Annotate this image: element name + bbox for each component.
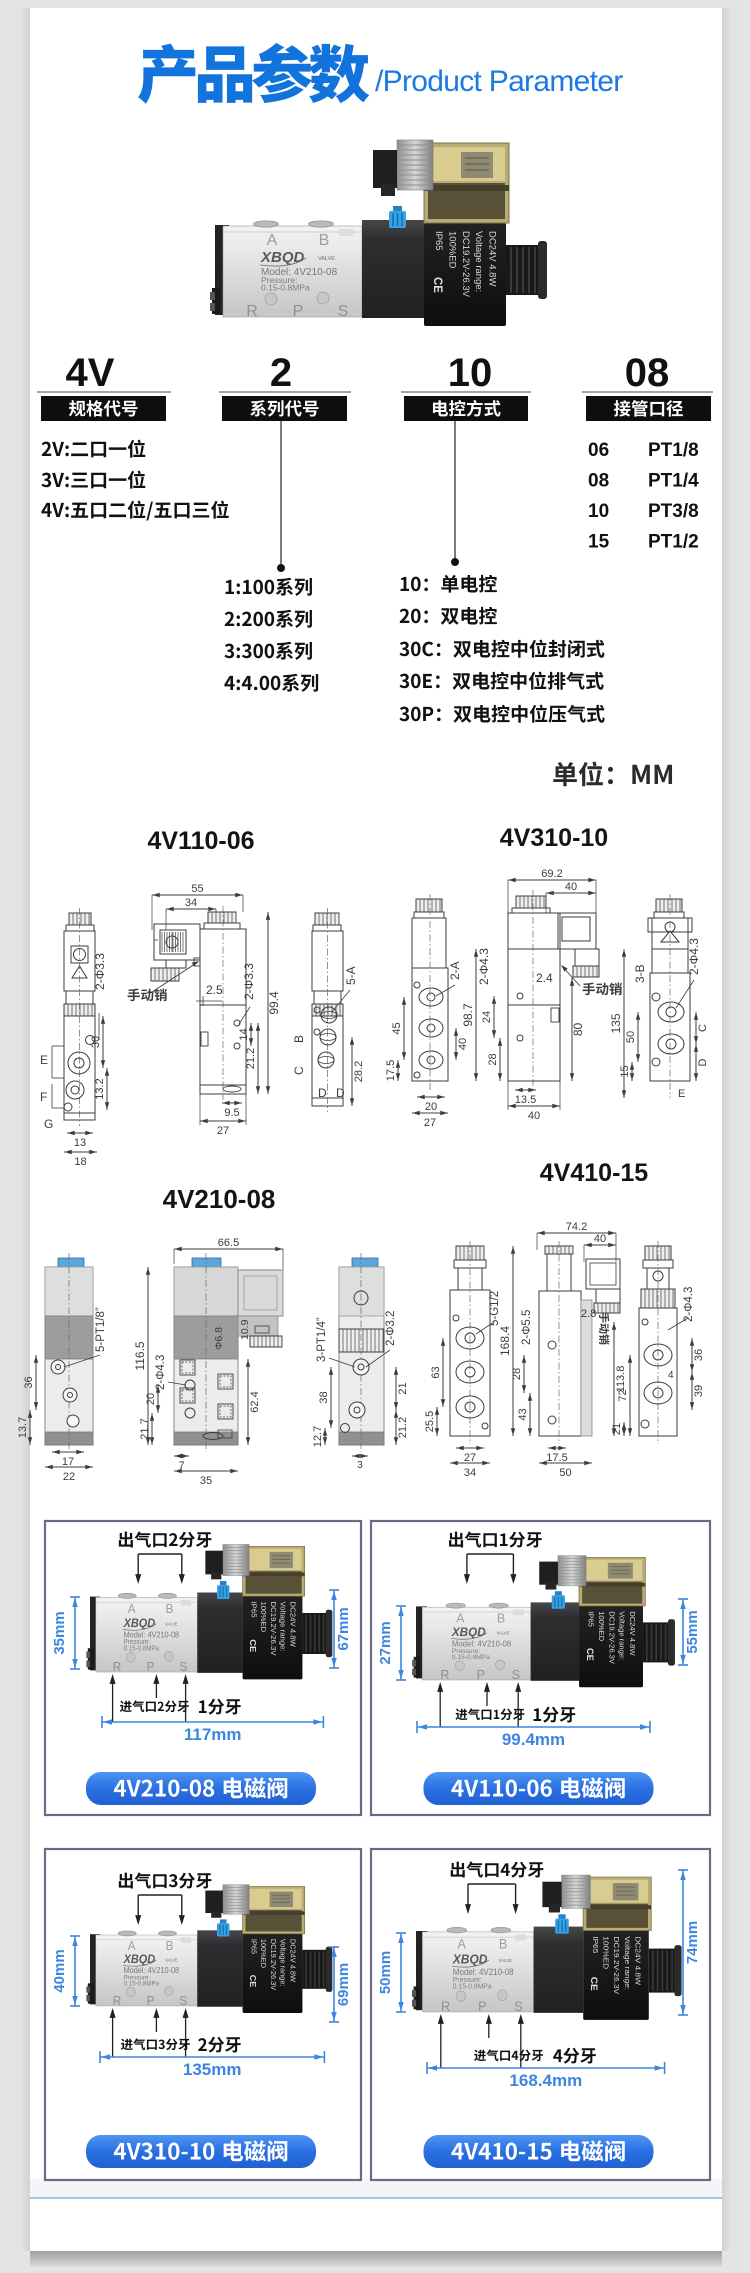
svg-text:06: 06 [588,440,609,461]
svg-text:27mm: 27mm [377,1621,394,1664]
svg-text:63: 63 [430,1366,442,1378]
svg-text:74mm: 74mm [684,1921,701,1964]
svg-text:13.7: 13.7 [17,1417,29,1438]
svg-text:135mm: 135mm [183,2060,242,2079]
svg-text:E: E [40,1053,48,1067]
svg-text:2-Φ5.5: 2-Φ5.5 [521,1310,533,1345]
svg-text:28: 28 [511,1368,523,1380]
svg-text:99.4: 99.4 [267,991,281,1015]
svg-text:35: 35 [200,1475,212,1487]
svg-text:14: 14 [238,1028,250,1040]
svg-text:40: 40 [594,1233,606,1245]
svg-text:2-Φ4.3: 2-Φ4.3 [477,948,491,985]
svg-text:50mm: 50mm [377,1951,394,1994]
svg-text:/Product Parameter: /Product Parameter [375,65,623,98]
svg-text:15: 15 [619,1065,631,1077]
svg-text:5-G1/2: 5-G1/2 [489,1291,501,1326]
svg-text:168.4mm: 168.4mm [509,2071,582,2090]
svg-text:3: 3 [357,1460,363,1471]
svg-text:4V: 4V [66,351,115,395]
svg-text:50: 50 [559,1467,571,1479]
svg-text:80: 80 [571,1023,585,1037]
svg-text:13.2: 13.2 [94,1078,106,1099]
svg-text:21.7: 21.7 [139,1418,151,1439]
svg-text:34: 34 [464,1467,476,1479]
svg-text:40: 40 [565,881,577,893]
svg-text:62.4: 62.4 [249,1391,261,1412]
svg-text:5-PT1/8”: 5-PT1/8” [95,1307,107,1352]
svg-text:4V110-06: 4V110-06 [147,827,254,855]
svg-text:21: 21 [397,1382,409,1394]
svg-text:74.2: 74.2 [566,1221,587,1233]
svg-text:PT1/4: PT1/4 [648,471,699,492]
svg-text:2-Φ4.3: 2-Φ4.3 [683,1287,695,1322]
svg-text:22: 22 [63,1471,75,1483]
svg-text:69.2: 69.2 [541,868,562,880]
svg-text:72: 72 [617,1389,629,1401]
svg-text:17.5: 17.5 [385,1060,397,1081]
svg-text:2-Φ3.3: 2-Φ3.3 [93,953,107,990]
svg-text:66.5: 66.5 [218,1237,239,1249]
svg-text:D: D [336,1086,345,1100]
svg-text:Φ6.8: Φ6.8 [213,1327,225,1350]
svg-text:28.2: 28.2 [353,1061,365,1082]
svg-text:25.5: 25.5 [424,1411,436,1432]
svg-text:15: 15 [588,532,610,553]
svg-text:9.5: 9.5 [224,1107,239,1119]
svg-text:B: B [292,1035,306,1043]
svg-text:08: 08 [625,351,670,395]
svg-text:27: 27 [464,1452,476,1464]
svg-text:2-Φ3.3: 2-Φ3.3 [242,963,256,1000]
svg-text:18: 18 [74,1156,86,1168]
svg-text:40: 40 [528,1110,540,1122]
svg-text:21.2: 21.2 [397,1417,409,1438]
svg-text:20: 20 [145,1393,157,1405]
svg-text:98.7: 98.7 [461,1003,475,1027]
svg-text:30: 30 [90,1036,102,1048]
svg-text:69mm: 69mm [335,1963,352,2006]
svg-text:168.4: 168.4 [498,1326,512,1356]
svg-text:38: 38 [318,1391,330,1403]
svg-text:27: 27 [424,1117,436,1129]
svg-text:13: 13 [74,1137,86,1149]
svg-text:13.5: 13.5 [515,1094,536,1106]
svg-text:17: 17 [62,1456,74,1468]
svg-text:PT1/8: PT1/8 [648,440,699,461]
svg-text:135: 135 [609,1013,623,1033]
svg-text:4V410-15: 4V410-15 [540,1159,649,1187]
svg-text:28: 28 [487,1053,499,1065]
svg-text:2.4: 2.4 [536,971,553,985]
svg-text:36: 36 [23,1376,35,1388]
svg-text:10.9: 10.9 [239,1319,251,1340]
svg-text:12.7: 12.7 [312,1426,324,1447]
svg-text:116.5: 116.5 [133,1341,147,1370]
svg-text:10: 10 [588,501,609,522]
svg-text:113.8: 113.8 [615,1366,627,1393]
svg-text:50: 50 [625,1031,637,1043]
svg-text:2-Φ4.3: 2-Φ4.3 [155,1355,167,1390]
svg-text:C: C [292,1066,306,1075]
svg-text:21.2: 21.2 [245,1048,257,1069]
svg-text:24: 24 [481,1011,493,1023]
svg-text:E: E [678,1088,685,1100]
svg-text:2.8: 2.8 [581,1308,596,1320]
svg-text:99.4mm: 99.4mm [502,1730,565,1749]
svg-text:4V210-08: 4V210-08 [163,1184,276,1214]
svg-text:10: 10 [448,351,493,395]
svg-text:27: 27 [217,1125,229,1137]
svg-text:117mm: 117mm [184,1725,242,1744]
svg-text:40mm: 40mm [51,1949,68,1992]
svg-text:C: C [697,1024,709,1032]
svg-text:17.5: 17.5 [546,1452,567,1464]
svg-text:2-Φ3.2: 2-Φ3.2 [385,1311,397,1346]
svg-text:08: 08 [588,471,609,492]
svg-text:40: 40 [457,1038,469,1050]
svg-text:4V310-10: 4V310-10 [500,824,608,852]
svg-text:67mm: 67mm [335,1607,352,1650]
svg-text:4: 4 [668,1370,674,1381]
svg-text:F: F [40,1090,47,1104]
svg-text:55: 55 [191,883,203,895]
svg-text:34: 34 [185,897,197,909]
svg-text:2.5: 2.5 [206,983,223,997]
svg-text:45: 45 [391,1022,403,1034]
svg-text:21: 21 [611,1423,623,1435]
svg-text:PT1/2: PT1/2 [648,532,699,553]
svg-text:35mm: 35mm [51,1611,68,1654]
svg-text:20: 20 [425,1101,437,1113]
svg-text:55mm: 55mm [684,1610,701,1653]
svg-text:36: 36 [693,1349,705,1361]
svg-text:39: 39 [693,1385,705,1397]
svg-text:2: 2 [270,351,292,395]
svg-text:3-B: 3-B [633,964,647,983]
svg-text:D: D [318,1086,327,1100]
svg-text:D: D [697,1058,709,1066]
svg-text:2-Φ4.3: 2-Φ4.3 [687,938,701,975]
svg-text:PT3/8: PT3/8 [648,501,699,522]
svg-text:G: G [44,1117,53,1131]
svg-text:3-PT1/4”: 3-PT1/4” [316,1317,328,1362]
svg-text:5-A: 5-A [344,966,358,985]
svg-text:43: 43 [517,1408,529,1420]
svg-text:2-A: 2-A [448,961,462,980]
